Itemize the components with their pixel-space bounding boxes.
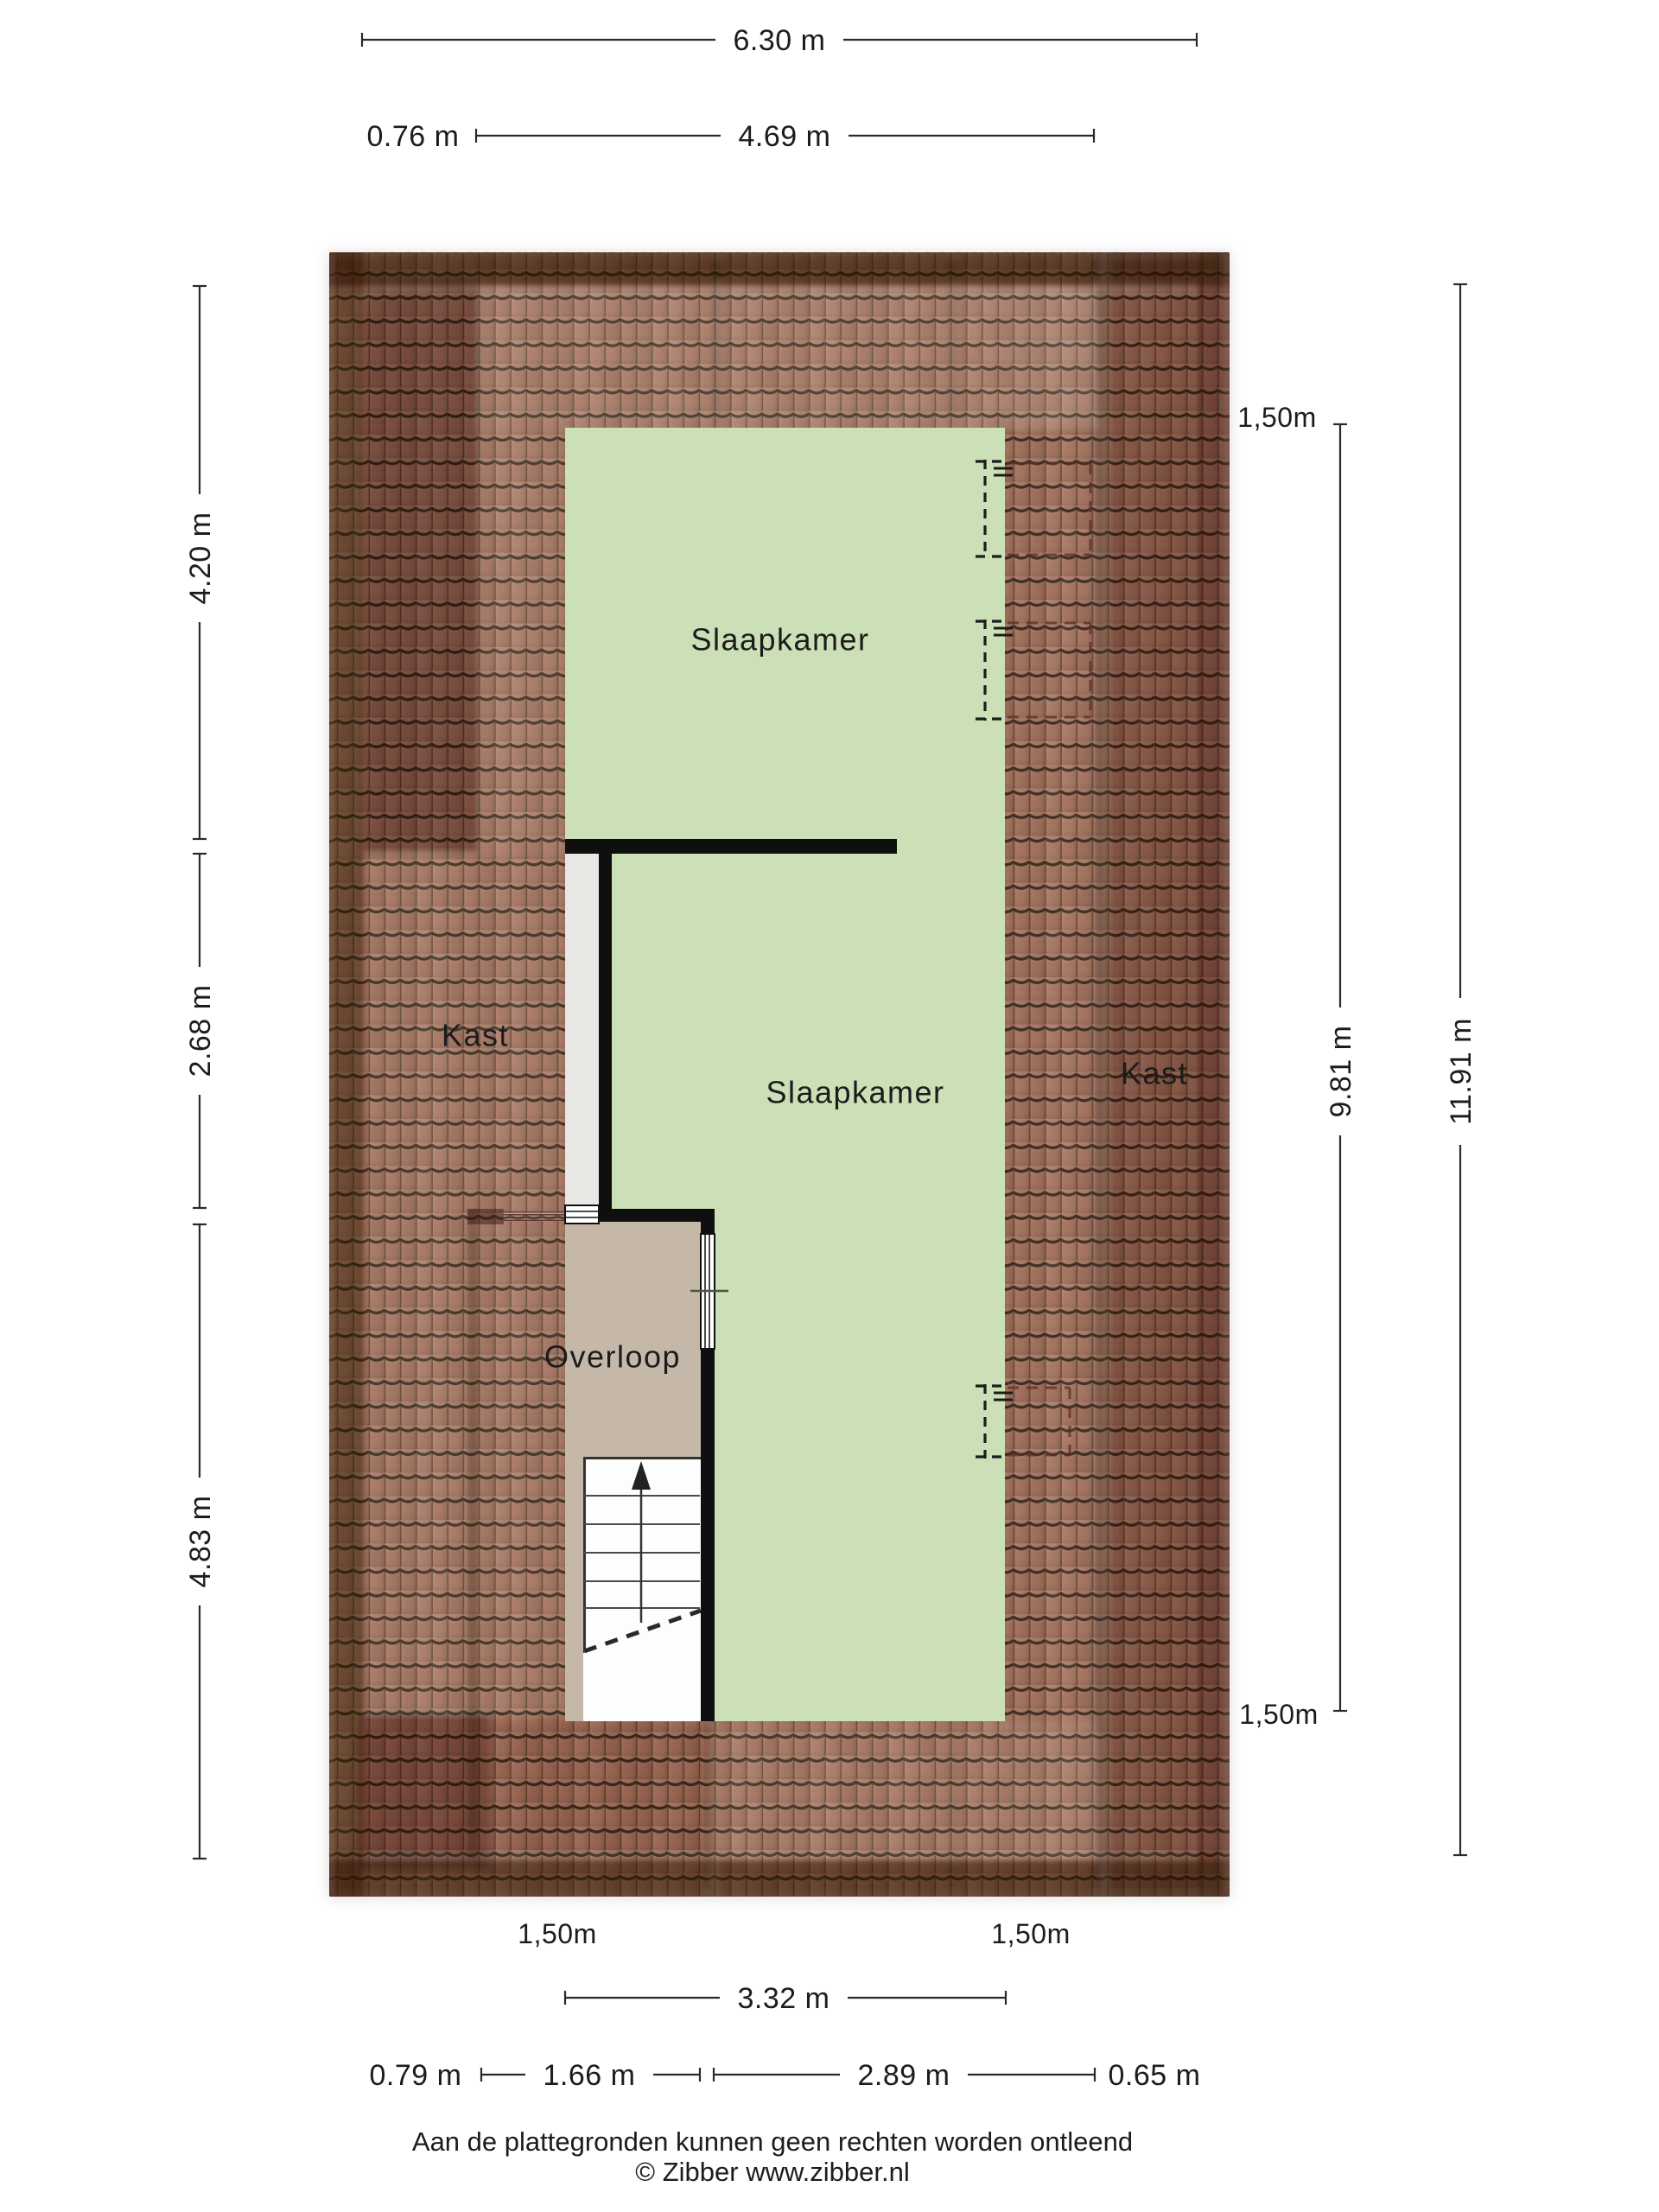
- svg-text:2.68 m: 2.68 m: [184, 985, 217, 1077]
- svg-text:Slaapkamer: Slaapkamer: [766, 1075, 944, 1110]
- svg-text:4.83 m: 4.83 m: [184, 1496, 217, 1588]
- svg-text:4.20 m: 4.20 m: [184, 512, 217, 605]
- svg-text:9.81 m: 9.81 m: [1325, 1026, 1357, 1118]
- svg-text:2.89 m: 2.89 m: [858, 2059, 950, 2092]
- svg-text:1,50m: 1,50m: [1239, 1699, 1318, 1730]
- svg-text:Overloop: Overloop: [544, 1339, 681, 1375]
- svg-text:3.32 m: 3.32 m: [738, 1982, 830, 2015]
- svg-text:Aan de plattegronden kunnen ge: Aan de plattegronden kunnen geen rechten…: [412, 2126, 1133, 2157]
- svg-text:4.69 m: 4.69 m: [739, 120, 831, 153]
- svg-text:0.76 m: 0.76 m: [367, 120, 460, 153]
- svg-text:1,50m: 1,50m: [991, 1918, 1070, 1949]
- svg-text:Kast: Kast: [1121, 1056, 1188, 1091]
- svg-text:1,50m: 1,50m: [1237, 402, 1316, 433]
- svg-text:1.66 m: 1.66 m: [543, 2059, 636, 2092]
- svg-text:© Zibber www.zibber.nl: © Zibber www.zibber.nl: [635, 2157, 909, 2187]
- svg-text:0.79 m: 0.79 m: [370, 2059, 462, 2092]
- svg-text:0.65 m: 0.65 m: [1109, 2059, 1201, 2092]
- svg-text:11.91 m: 11.91 m: [1445, 1018, 1478, 1125]
- svg-text:6.30 m: 6.30 m: [734, 24, 826, 57]
- svg-text:1,50m: 1,50m: [518, 1918, 596, 1949]
- svg-text:Slaapkamer: Slaapkamer: [690, 622, 869, 658]
- svg-text:Kast: Kast: [442, 1018, 509, 1053]
